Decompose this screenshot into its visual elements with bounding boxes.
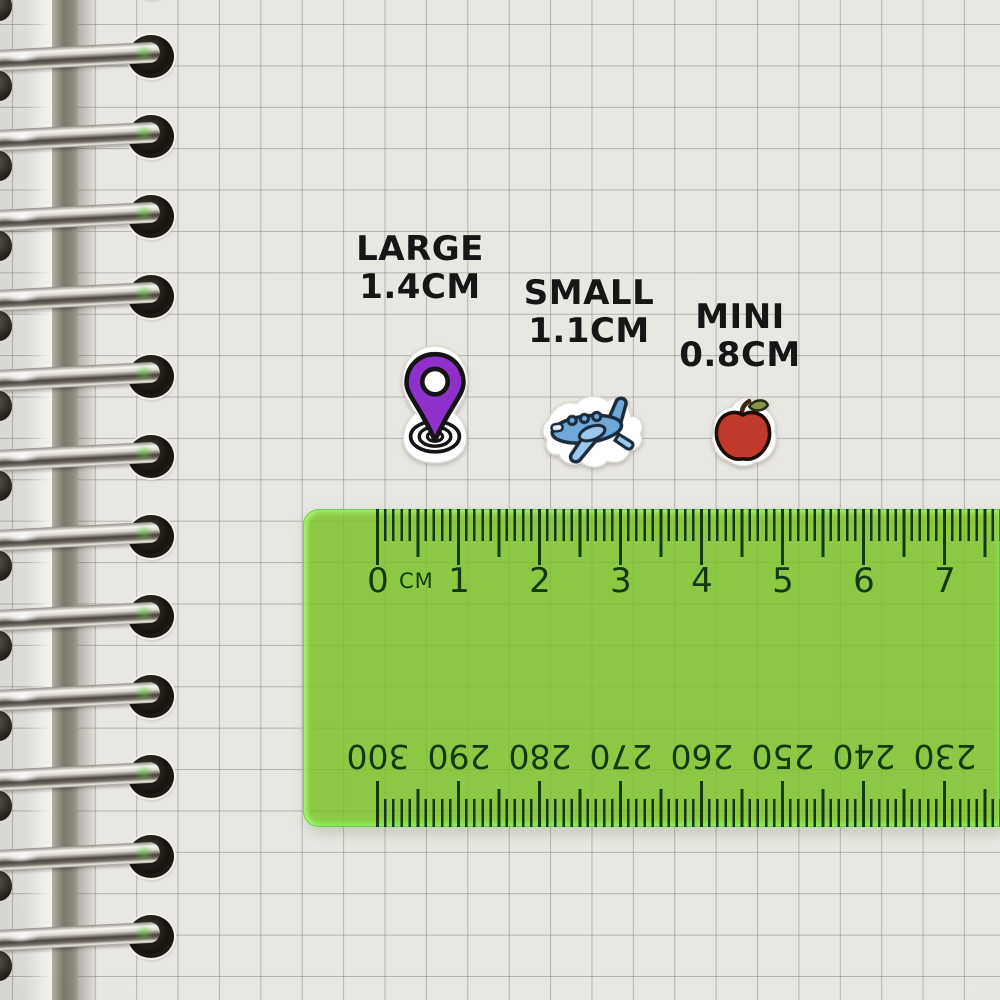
binding-ring — [0, 187, 210, 247]
binding-ring-backside — [0, 311, 12, 341]
binding-ring-backside — [0, 471, 12, 501]
ruler-cm-number: 0 — [346, 561, 410, 601]
apple-sticker — [707, 393, 779, 469]
binding-ring-backside — [0, 71, 12, 101]
binding-ring — [0, 267, 210, 327]
ruler-cm-number: 7 — [913, 561, 977, 601]
spiral-binding — [0, 0, 220, 1000]
ruler-mm-number: 300 — [343, 737, 413, 776]
label-mini-size: 0.8CM — [674, 336, 806, 374]
binding-ring-backside — [0, 951, 12, 981]
binding-ring-backside — [0, 0, 12, 21]
binding-ring-backside — [0, 791, 12, 821]
ruler-cm-number: 6 — [832, 561, 896, 601]
binding-ring — [0, 587, 210, 647]
airplane-sticker — [537, 388, 648, 472]
label-small-name: SMALL — [524, 273, 654, 313]
ruler-mm-number: 250 — [748, 737, 818, 776]
binding-ring — [0, 827, 210, 887]
ruler-bottom-half-ticks — [376, 789, 1000, 827]
binding-ring — [0, 27, 210, 87]
binding-ring-backside — [0, 631, 12, 661]
ruler-mm-number: 260 — [667, 737, 737, 776]
ruler-cm-number: 2 — [508, 561, 572, 601]
binding-ring — [0, 667, 210, 727]
label-small: SMALL 1.1CM — [520, 274, 658, 350]
binding-ring — [0, 907, 210, 967]
ruler-mm-number: 240 — [829, 737, 899, 776]
label-large-size: 1.4CM — [355, 268, 485, 306]
ruler-cm-number: 4 — [670, 561, 734, 601]
ruler-cm-number: 3 — [589, 561, 653, 601]
ruler-mm-number: 230 — [910, 737, 980, 776]
binding-ring-backside — [0, 151, 12, 181]
label-small-size: 1.1CM — [520, 312, 658, 350]
ruler-cm-number: 1 — [427, 561, 491, 601]
binding-ring — [0, 0, 210, 7]
binding-ring — [0, 107, 210, 167]
label-large-name: LARGE — [356, 229, 484, 269]
label-mini-name: MINI — [695, 297, 785, 337]
ruler-top-half-ticks — [376, 509, 1000, 557]
ruler-cm-number: 5 — [751, 561, 815, 601]
ruler-bottom-cm-ticks — [376, 781, 1000, 827]
binding-ring-backside — [0, 871, 12, 901]
binding-ring — [0, 347, 210, 407]
ruler-mm-number: 290 — [424, 737, 494, 776]
ruler-top-cm-ticks — [376, 509, 1000, 565]
apple-icon — [707, 393, 779, 469]
location-pin-icon — [386, 342, 484, 466]
binding-ring-backside — [0, 551, 12, 581]
binding-ring — [0, 427, 210, 487]
binding-ring-backside — [0, 391, 12, 421]
ruler-top-mm-ticks — [376, 509, 1000, 541]
binding-ring-backside — [0, 231, 12, 261]
location-pin-sticker — [386, 342, 484, 466]
ruler-mm-number: 270 — [586, 737, 656, 776]
label-large: LARGE 1.4CM — [355, 230, 485, 306]
green-ruler: CM 01234567 300290280270260250240230 — [303, 509, 1000, 827]
ruler-bottom-mm-ticks — [376, 799, 1000, 827]
binding-ring-backside — [0, 711, 12, 741]
binding-ring — [0, 747, 210, 807]
label-mini: MINI 0.8CM — [674, 298, 806, 374]
binding-ring — [0, 507, 210, 567]
airplane-icon — [537, 388, 648, 472]
ruler-mm-number: 280 — [505, 737, 575, 776]
